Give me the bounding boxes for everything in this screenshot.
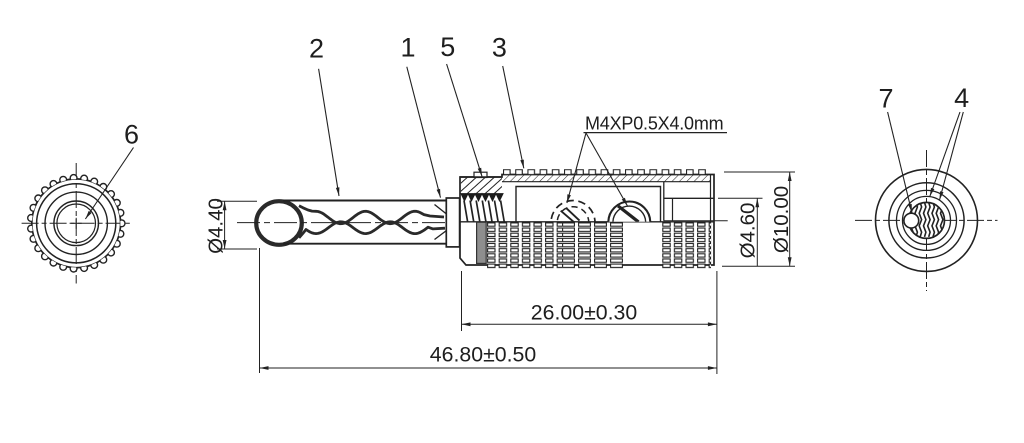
svg-text:3: 3 bbox=[492, 33, 507, 63]
svg-text:26.00±0.30: 26.00±0.30 bbox=[531, 301, 638, 325]
svg-text:Ø10.00: Ø10.00 bbox=[770, 186, 793, 253]
svg-text:2: 2 bbox=[309, 34, 324, 64]
svg-text:46.80±0.50: 46.80±0.50 bbox=[430, 343, 537, 367]
svg-text:Ø4.40: Ø4.40 bbox=[205, 198, 228, 254]
svg-text:7: 7 bbox=[878, 84, 893, 114]
svg-text:6: 6 bbox=[124, 120, 139, 150]
svg-text:4: 4 bbox=[954, 83, 969, 113]
svg-text:5: 5 bbox=[440, 32, 455, 62]
svg-text:1: 1 bbox=[400, 33, 415, 63]
svg-text:M4XP0.5X4.0mm: M4XP0.5X4.0mm bbox=[585, 114, 723, 134]
svg-text:Ø4.60: Ø4.60 bbox=[737, 203, 760, 259]
